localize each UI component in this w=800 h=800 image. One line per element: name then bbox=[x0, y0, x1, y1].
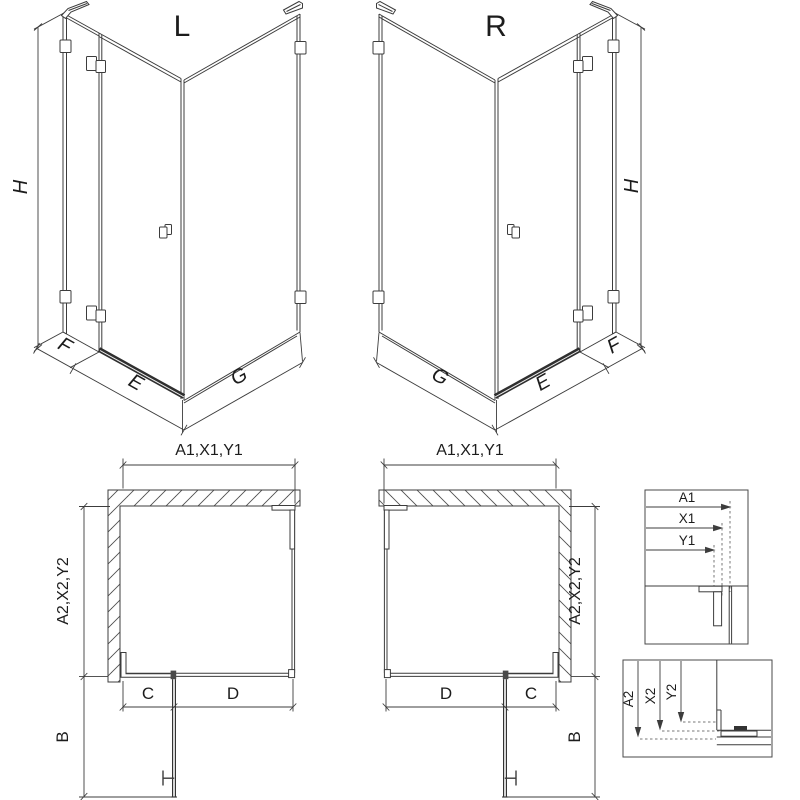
plan-opening-label-right: D bbox=[440, 684, 452, 703]
dim-label-side-right: G bbox=[428, 363, 452, 390]
plan-width-label-right: A1,X1,Y1 bbox=[436, 442, 504, 459]
plan-fixed-label-right: C bbox=[525, 684, 537, 703]
technical-drawing-sheet: L H F E G R H F E G A1,X1,Y1 A2,X2,Y2 C … bbox=[0, 0, 800, 800]
plan-geometry-mirrored bbox=[379, 459, 600, 800]
dim-label-door-right: E bbox=[532, 370, 555, 396]
detail-depth-label-y2: Y2 bbox=[664, 684, 679, 701]
dim-label-height-right: H bbox=[621, 178, 643, 193]
dim-label-door-left: E bbox=[125, 370, 148, 396]
detail-box-width: A1 X1 Y1 bbox=[645, 490, 748, 644]
plan-door-proj-label-right: B bbox=[565, 731, 584, 742]
dim-label-side-left: G bbox=[227, 363, 251, 390]
dim-label-height-left: H bbox=[10, 179, 32, 194]
plan-fixed-label-left: C bbox=[142, 684, 154, 703]
detail-box-depth: A2 X2 Y2 bbox=[621, 660, 772, 757]
plan-depth-label-right: A2,X2,Y2 bbox=[567, 557, 584, 625]
plan-view-right: A1,X1,Y1 A2,X2,Y2 D C B bbox=[379, 442, 600, 800]
plan-door-proj-label-left: B bbox=[53, 731, 72, 742]
detail-box-width-frame bbox=[645, 490, 748, 644]
detail-width-label-y1: Y1 bbox=[679, 533, 696, 548]
detail-depth-label-a2: A2 bbox=[621, 691, 636, 708]
isometric-view-right: R H F E G bbox=[373, 2, 646, 436]
drawing-canvas: L H F E G R H F E G A1,X1,Y1 A2,X2,Y2 C … bbox=[0, 0, 800, 800]
plan-depth-label-left: A2,X2,Y2 bbox=[55, 557, 72, 625]
detail-width-label-x1: X1 bbox=[679, 511, 696, 526]
dim-label-return-left: F bbox=[54, 333, 77, 359]
plan-width-label-left: A1,X1,Y1 bbox=[175, 442, 243, 459]
detail-width-label-a1: A1 bbox=[679, 490, 696, 505]
isometric-view-left: L H F E G bbox=[10, 2, 306, 436]
variant-label-right: R bbox=[485, 10, 507, 43]
isometric-geometry-mirrored bbox=[373, 2, 646, 436]
plan-view-left: A1,X1,Y1 A2,X2,Y2 C D B bbox=[53, 442, 300, 800]
plan-opening-label-left: D bbox=[227, 684, 239, 703]
detail-depth-label-x2: X2 bbox=[643, 688, 658, 705]
detail-box-depth-frame bbox=[623, 660, 772, 757]
variant-label-left: L bbox=[174, 10, 191, 43]
